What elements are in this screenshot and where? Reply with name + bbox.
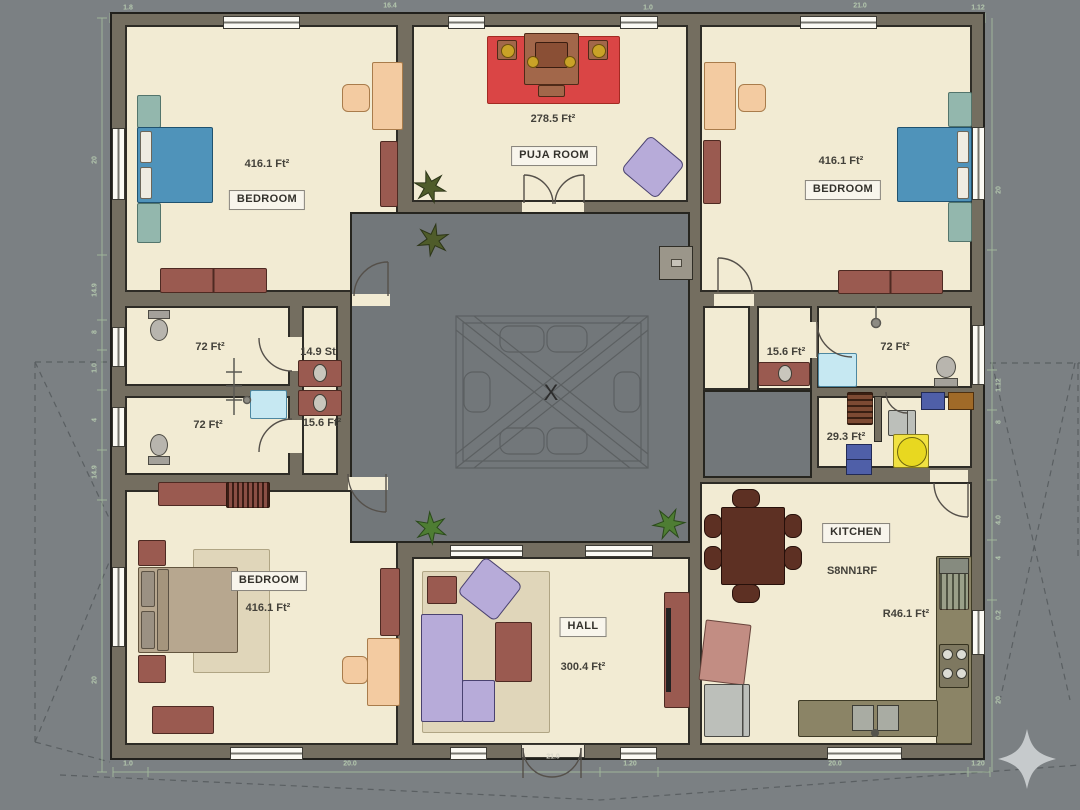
room-area-store: 29.3 Ft² [827,431,866,443]
dimension-label: 1.0 [123,761,133,768]
dimension-label: 1.8 [123,5,133,12]
dimension-label: 8 [996,420,1003,424]
room-label-puja: PUJA ROOM [511,146,597,166]
dimension-label: 14.9 [92,465,99,479]
room-label-kitchen: KITCHEN [822,523,890,543]
room-label-bedroom-bl: BEDROOM [231,571,307,591]
dimension-label: 1.20 [971,761,985,768]
room-area-wc-l2: 15.6 Ft² [303,417,342,429]
room-area-bath-l2: 72 Ft² [193,419,222,431]
room-area-bedroom-bl: 416.1 Ft² [246,602,291,614]
dimension-label: 20 [996,186,1003,194]
dimension-label: 20 [92,156,99,164]
room-area-puja: 278.5 Ft² [531,113,576,125]
room-label-hall: HALL [560,617,607,637]
floor-plan: BEDROOM 416.1 Ft² PUJA ROOM 278.5 Ft² BE… [0,0,1080,810]
dimension-label: 20 [92,676,99,684]
dimension-label: 20 [996,696,1003,704]
dimension-label: 20.0 [828,761,842,768]
door-arcs [259,175,968,778]
room-area-bedroom-tr: 416.1 Ft² [819,155,864,167]
room-area-bath-r: 72 Ft² [880,341,909,353]
dimension-label: 1.0 [643,5,653,12]
entrance-dimension-label: 21.0 [546,754,560,761]
dimension-label: 1.0 [92,363,99,373]
dimension-label: 20.0 [343,761,357,768]
room-area-wc-l1: 14.9 St [300,346,335,358]
dimension-label: 1.20 [623,761,637,768]
room-note-kitchen: S8NN1RF [827,565,877,577]
dimension-label: 14.9 [92,283,99,297]
dimension-label: 0.2 [996,610,1003,620]
dimension-label: 16.4 [383,3,397,10]
room-area-kitchen: R46.1 Ft² [883,608,929,620]
room-area-bedroom-tl: 416.1 Ft² [245,158,290,170]
dimension-label: 21.0 [853,3,867,10]
room-area-hall: 300.4 Ft² [561,661,606,673]
dimension-label: 1.12 [971,5,985,12]
dimension-label: 4.0 [996,515,1003,525]
dimension-label: 8 [92,330,99,334]
courtyard-marker: X [544,380,559,406]
room-area-bath-l1: 72 Ft² [195,341,224,353]
room-label-bedroom-tl: BEDROOM [229,190,305,210]
dimension-label: 4 [92,418,99,422]
room-area-wc-r: 15.6 Ft² [767,346,806,358]
room-label-bedroom-tr: BEDROOM [805,180,881,200]
dimension-label: 4 [996,556,1003,560]
dimension-label: 1.12 [996,378,1003,392]
